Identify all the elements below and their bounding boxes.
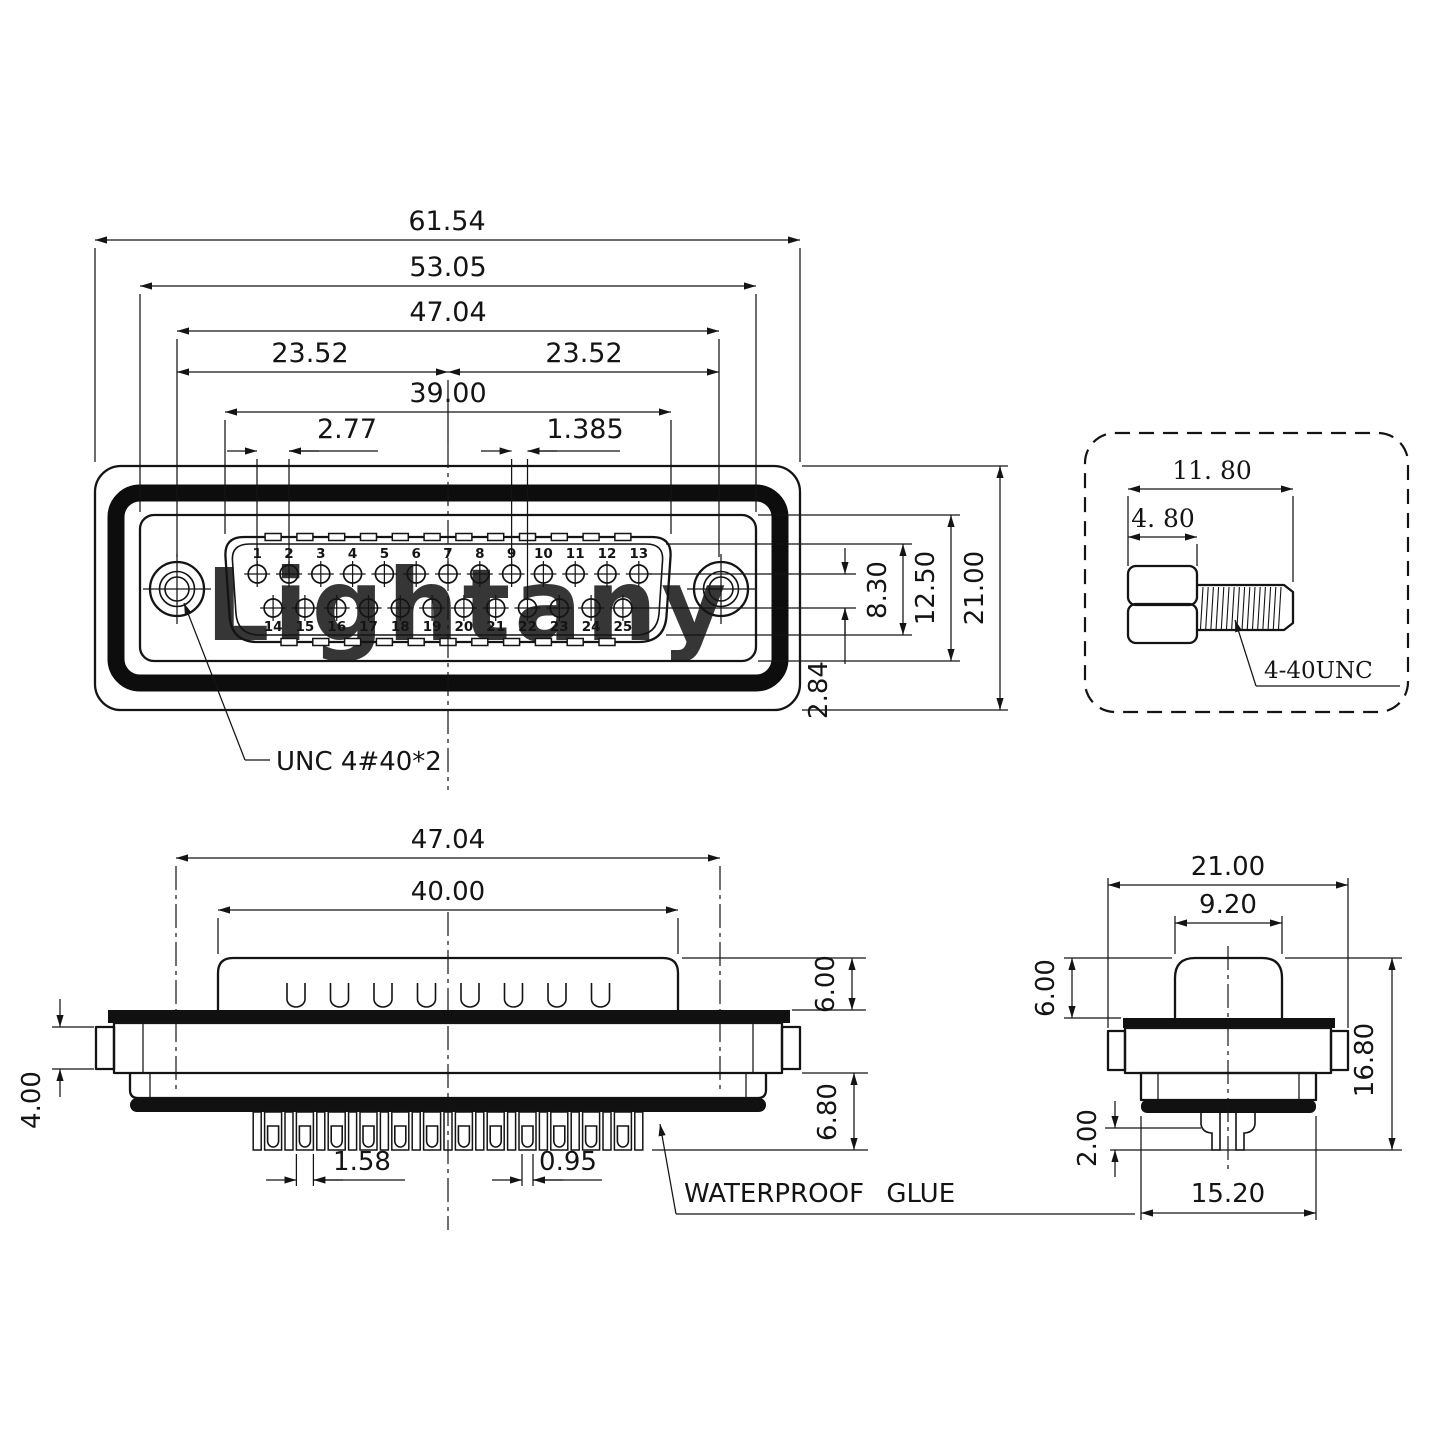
shell-slot xyxy=(505,983,523,1007)
pin-number: 17 xyxy=(359,619,378,635)
side-dimensions: 47.04 40.00 4.00 6.00 6.80 1.58 0.95 xyxy=(17,825,868,1186)
pin-leg-back xyxy=(285,1112,293,1150)
pin-number: 12 xyxy=(598,546,617,562)
dim-recess-height: 12.50 xyxy=(911,551,941,625)
pin-number: 4 xyxy=(348,546,357,562)
thread-line xyxy=(1227,587,1230,629)
tick-mark xyxy=(456,534,472,541)
side-view: 47.04 40.00 4.00 6.00 6.80 1.58 0.95 xyxy=(17,825,1135,1230)
pin-number: 16 xyxy=(327,619,346,635)
dim-pin-width: 1.58 xyxy=(333,1147,391,1177)
end-flange-tab-right xyxy=(1331,1031,1348,1070)
pin-number: 25 xyxy=(614,619,633,635)
shell-slot xyxy=(592,983,610,1007)
pin-leg-back xyxy=(539,1112,547,1150)
dim-screw-head: 4. 80 xyxy=(1131,504,1195,533)
pin-number: 14 xyxy=(264,619,283,635)
dim-pin-row-span: 8.30 xyxy=(863,561,893,619)
end-dimensions: 21.00 9.20 6.00 16.80 2.00 15.20 xyxy=(1031,852,1402,1220)
dim-end-total-height: 16.80 xyxy=(1350,1023,1380,1097)
tick-mark xyxy=(551,534,567,541)
dim-opening-width: 39.00 xyxy=(409,378,486,409)
pin-leg-back xyxy=(380,1112,388,1150)
glue-callout: WATERPROOF GLUE xyxy=(660,1124,1135,1214)
end-gasket-bar xyxy=(1123,1018,1335,1028)
thread-line xyxy=(1247,587,1250,629)
dim-end-glue-width: 15.20 xyxy=(1191,1179,1265,1209)
pin-number: 20 xyxy=(455,619,474,635)
pin-leg-back xyxy=(635,1112,643,1150)
dim-lower-height: 6.80 xyxy=(813,1083,843,1141)
pin-number: 10 xyxy=(534,546,553,562)
tick-mark xyxy=(265,534,281,541)
tick-mark xyxy=(424,534,440,541)
tick-mark xyxy=(392,534,408,541)
thread-line xyxy=(1232,587,1235,629)
tick-mark xyxy=(615,534,631,541)
dim-flange-tab: 4.00 xyxy=(17,1071,47,1129)
dim-end-shell-width: 9.20 xyxy=(1199,890,1257,920)
tick-mark xyxy=(567,639,583,646)
dim-side-mount-span: 47.04 xyxy=(411,825,485,855)
dim-end-flange-width: 21.00 xyxy=(1191,852,1265,882)
pin-leg-back xyxy=(508,1112,516,1150)
tick-mark xyxy=(297,534,313,541)
tick-mark xyxy=(583,534,599,541)
side-gasket-bar xyxy=(108,1010,790,1023)
dim-pin-gap: 0.95 xyxy=(539,1147,597,1177)
dim-shell-width: 40.00 xyxy=(411,877,485,907)
pin-leg-back xyxy=(571,1112,579,1150)
side-flange-tab-left xyxy=(96,1027,114,1069)
thread-line xyxy=(1273,587,1276,629)
glue-label: WATERPROOF GLUE xyxy=(684,1179,955,1209)
tick-mark xyxy=(345,639,361,646)
pin-number: 21 xyxy=(486,619,505,635)
side-flange-tab-right xyxy=(782,1027,800,1069)
dim-shell-width: 53.05 xyxy=(409,252,486,283)
pin-number: 5 xyxy=(380,546,389,562)
dim-screw-length: 11. 80 xyxy=(1172,456,1252,485)
shell-slot xyxy=(331,983,349,1007)
pin-leg-back xyxy=(317,1112,325,1150)
thread-line xyxy=(1263,587,1266,629)
dim-end-pin-step: 2.00 xyxy=(1073,1109,1103,1167)
thread-line xyxy=(1279,587,1282,629)
thread-label: 4-40UNC xyxy=(1264,658,1373,684)
screw-thread-label: UNC 4#40*2 xyxy=(276,747,442,777)
screw-head-bottom xyxy=(1128,604,1197,643)
pin-leg-back xyxy=(253,1112,261,1150)
dim-shell-height: 6.00 xyxy=(811,955,841,1013)
tick-mark xyxy=(329,534,345,541)
connector-drawing: Lightany 1234567891011121314151617181920… xyxy=(0,0,1440,1440)
thread-line xyxy=(1253,587,1256,629)
tick-mark xyxy=(376,639,392,646)
pin-number: 24 xyxy=(582,619,601,635)
pin-number: 6 xyxy=(411,546,420,562)
shell-slot xyxy=(374,983,392,1007)
dim-total-width: 61.54 xyxy=(408,206,485,237)
thread-line xyxy=(1268,587,1271,629)
watermark: Lightany xyxy=(206,547,730,664)
tick-mark xyxy=(361,534,377,541)
tick-mark xyxy=(408,639,424,646)
screw-detail-view: 11. 80 4. 80 4-40UNC xyxy=(1085,433,1408,712)
dim-body-height: 21.00 xyxy=(960,551,990,625)
pin-number: 11 xyxy=(566,546,585,562)
pin-leg-back xyxy=(412,1112,420,1150)
shell-slot xyxy=(548,983,566,1007)
pin-number: 23 xyxy=(550,619,569,635)
thread-line xyxy=(1201,587,1204,629)
pin-leg-back xyxy=(603,1112,611,1150)
dim-end-shell-height: 6.00 xyxy=(1031,959,1061,1017)
shell-slot xyxy=(418,983,436,1007)
tick-mark xyxy=(281,639,297,646)
dim-half-pitch: 1.385 xyxy=(546,414,623,445)
tick-mark xyxy=(599,639,615,646)
pin-leg-back xyxy=(349,1112,357,1150)
pin-number: 3 xyxy=(316,546,325,562)
pin-number: 8 xyxy=(475,546,484,562)
screw-head-top xyxy=(1128,566,1197,605)
pin-leg-back xyxy=(476,1112,484,1150)
thread-line xyxy=(1211,587,1214,629)
pin-number: 15 xyxy=(296,619,315,635)
pin-number: 13 xyxy=(629,546,648,562)
dim-mount-span: 47.04 xyxy=(409,297,486,328)
thread-line xyxy=(1237,587,1240,629)
tick-mark xyxy=(504,639,520,646)
end-view: 21.00 9.20 6.00 16.80 2.00 15.20 xyxy=(1031,852,1402,1220)
end-pin-right xyxy=(1236,1113,1255,1150)
drawing-sheet: Lightany 1234567891011121314151617181920… xyxy=(0,0,1440,1440)
pin-number: 19 xyxy=(423,619,442,635)
tick-mark xyxy=(472,639,488,646)
thread-line xyxy=(1216,587,1219,629)
end-pin-left xyxy=(1201,1113,1220,1150)
dim-pin-pitch: 2.77 xyxy=(317,414,377,445)
screw-threads xyxy=(1201,587,1282,629)
thread-line xyxy=(1242,587,1245,629)
tick-mark xyxy=(488,534,504,541)
thread-line xyxy=(1206,587,1209,629)
pin-number: 18 xyxy=(391,619,410,635)
shell-slot xyxy=(287,983,305,1007)
pin-number: 22 xyxy=(518,619,537,635)
thread-line xyxy=(1258,587,1261,629)
dim-half-right: 23.52 xyxy=(545,338,622,369)
mount-hole-left xyxy=(143,554,211,624)
end-flange-tab-left xyxy=(1108,1031,1125,1070)
tick-mark xyxy=(313,639,329,646)
tick-mark xyxy=(535,639,551,646)
dim-half-left: 23.52 xyxy=(271,338,348,369)
shell-slot xyxy=(461,983,479,1007)
front-view: Lightany 1234567891011121314151617181920… xyxy=(95,206,1008,790)
thread-line xyxy=(1221,587,1224,629)
